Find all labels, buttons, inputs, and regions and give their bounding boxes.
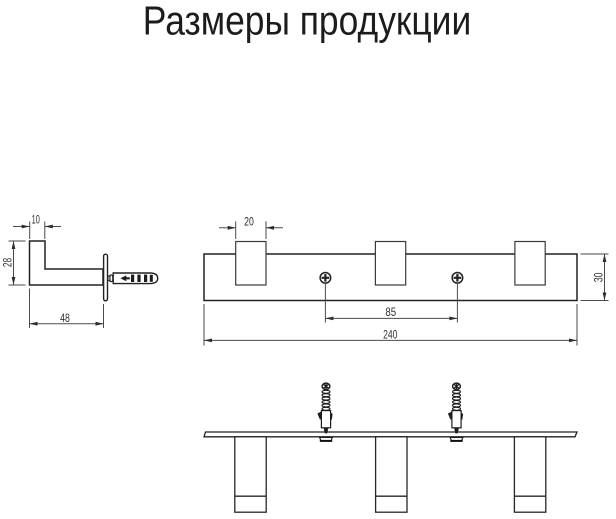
svg-text:85: 85: [385, 305, 396, 319]
svg-text:10: 10: [32, 213, 40, 227]
svg-text:30: 30: [591, 272, 605, 282]
svg-text:20: 20: [244, 214, 254, 228]
svg-text:240: 240: [383, 328, 398, 342]
svg-text:28: 28: [1, 258, 15, 267]
svg-text:48: 48: [60, 311, 70, 325]
svg-text:Размеры продукции: Размеры продукции: [143, 0, 472, 43]
